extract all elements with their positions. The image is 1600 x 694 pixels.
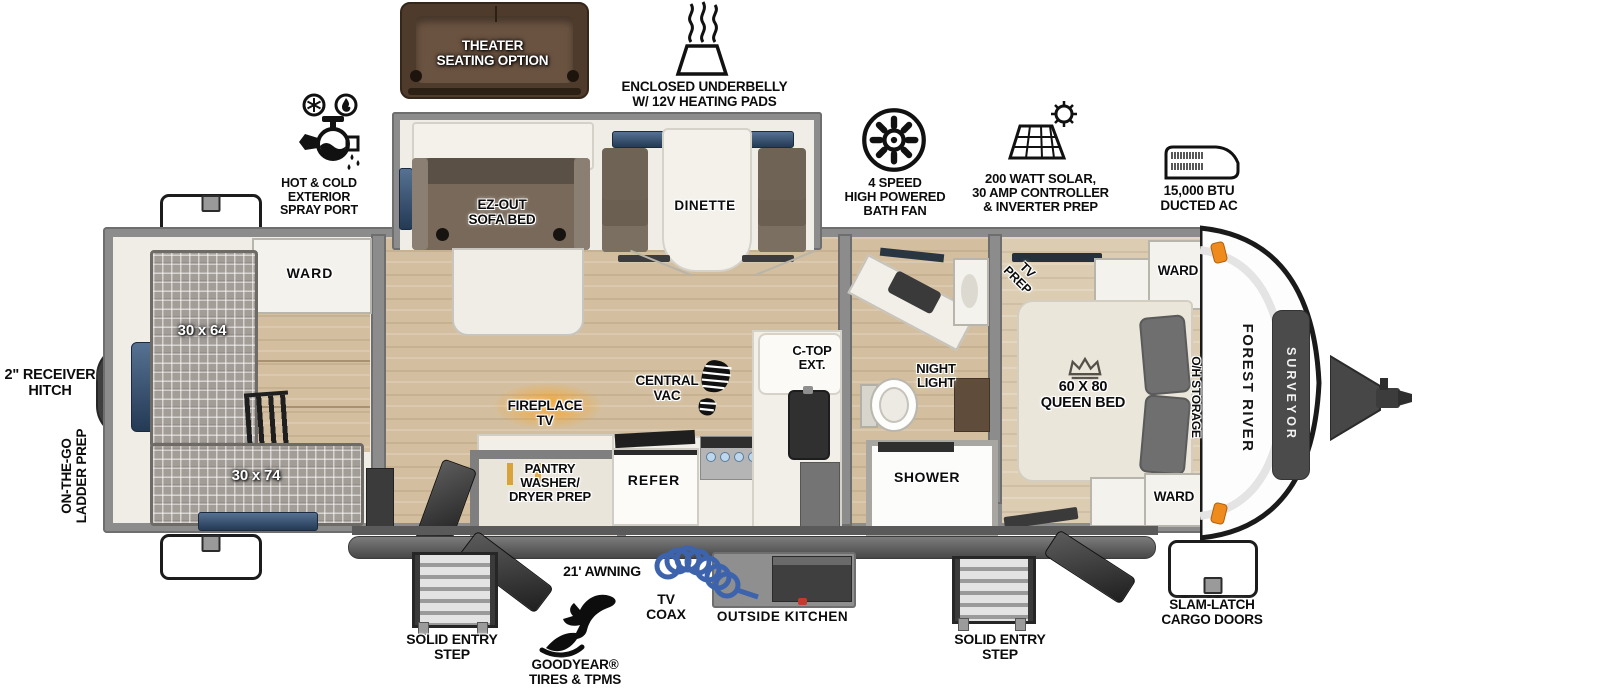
entry-step-right	[952, 556, 1036, 624]
stove-burner	[734, 452, 744, 462]
central-vac-label: CENTRAL VAC	[622, 374, 712, 403]
goodyear-label: GOODYEAR® TIRES & TPMS	[512, 658, 638, 687]
sofa-side-window	[399, 168, 413, 230]
stove-burner	[720, 452, 730, 462]
bath-cabinet-oval	[961, 274, 978, 308]
dinette-bench-right	[758, 148, 806, 252]
cargo-latch-icon	[202, 195, 221, 212]
ducted-ac-label: 15,000 BTU DUCTED AC	[1154, 184, 1244, 213]
dinette-label: DINETTE	[645, 199, 765, 214]
stove-burner	[706, 452, 716, 462]
sofa-label: EZ-OUT SOFA BED	[452, 198, 552, 227]
sofa-cupholder	[436, 228, 449, 241]
ducted-ac-icon	[1162, 138, 1242, 182]
rear-cargo-door-outline-bottom	[160, 534, 262, 580]
bunk-step-edge	[252, 360, 370, 362]
bunk-upper-mattress	[150, 250, 258, 448]
bath-corner-cabinet	[953, 258, 989, 326]
ladder-prep-label: ON-THE-GO LADDER PREP	[60, 417, 102, 535]
pantry-label: PANTRY WASHER/ DRYER PREP	[494, 462, 606, 504]
slam-latch-label: SLAM-LATCH CARGO DOORS	[1146, 598, 1278, 627]
sofa-cupholder	[553, 228, 566, 241]
shower-label: SHOWER	[872, 470, 982, 485]
goodyear-wingfoot-icon	[534, 590, 622, 658]
shower-head-strip	[878, 442, 954, 452]
sink-faucet	[803, 386, 813, 394]
make-logo: FOREST RIVER	[1235, 298, 1255, 478]
underbelly-label: ENCLOSED UNDERBELLY W/ 12V HEATING PADS	[612, 80, 797, 109]
cargo-latch-icon	[1204, 577, 1223, 594]
cargo-latch-icon	[202, 535, 221, 552]
bed-pillow	[1139, 394, 1192, 476]
awning-label: 21' AWNING	[552, 564, 652, 579]
entry-step-left-label: SOLID ENTRY STEP	[397, 632, 507, 662]
theater-seat-seam	[495, 6, 497, 22]
bunk-upper-size-label: 30 x 64	[152, 323, 252, 339]
kitchen-end-cabinet	[800, 462, 840, 530]
solar-prep-label: 200 WATT SOLAR, 30 AMP CONTROLLER & INVE…	[958, 172, 1123, 214]
receiver-hitch-label: 2" RECEIVER HITCH	[0, 368, 100, 399]
theater-seat-cupholder	[567, 70, 579, 82]
bunk-lower-size-label: 30 x 74	[206, 468, 306, 484]
theater-seat-cupholder	[410, 70, 422, 82]
floorplan-canvas: THEATER SEATING OPTION ENCLOSED UNDERBEL…	[0, 0, 1600, 694]
rear-ward-label: WARD	[262, 266, 358, 281]
bath-fan-icon	[860, 106, 928, 174]
bedroom-nightstand-bottom	[1090, 477, 1146, 527]
spray-port-icon	[286, 92, 378, 178]
ward-front-bottom-label: WARD	[1142, 490, 1206, 505]
solar-prep-icon	[1004, 100, 1082, 170]
frame-rail	[352, 526, 1158, 535]
shower-stall	[866, 440, 998, 538]
tv-coax-label: TV COAX	[638, 592, 694, 622]
sofa-armrest	[412, 158, 428, 250]
bunkroom-bottom-window	[198, 512, 318, 531]
front-cargo-door-outline	[1168, 540, 1258, 598]
sofa-bed-pullout	[452, 248, 584, 336]
night-light-label: NIGHT LIGHT	[900, 362, 972, 390]
model-logo: SURVEYOR	[1283, 314, 1297, 474]
theater-seat-base	[408, 88, 581, 95]
sofa-backrest	[426, 158, 576, 184]
bath-fan-label: 4 SPEED HIGH POWERED BATH FAN	[830, 176, 960, 218]
entry-step-left	[412, 552, 498, 628]
hitch-tongue	[1330, 352, 1415, 444]
outside-kitchen-label: OUTSIDE KITCHEN	[705, 610, 860, 625]
sofa-armrest	[574, 158, 590, 250]
dinette-bench-left	[602, 148, 648, 252]
entry-step-right-label: SOLID ENTRY STEP	[945, 632, 1055, 662]
ctop-ext-label: C-TOP EXT.	[783, 344, 841, 372]
crown-icon	[1066, 356, 1104, 381]
step-foot	[958, 618, 969, 631]
fireplace-label: FIREPLACE TV	[495, 399, 595, 428]
spray-port-label: HOT & COLD EXTERIOR SPRAY PORT	[254, 177, 384, 218]
heating-pads-icon	[658, 0, 744, 78]
oh-storage-label: O/H STORAGE	[1186, 349, 1202, 445]
step-foot	[1015, 618, 1026, 631]
refer-label: REFER	[612, 473, 696, 488]
outside-kitchen-griddle	[772, 556, 852, 602]
bunkroom-tv-cabinet	[366, 468, 394, 530]
kitchen-sink	[788, 390, 830, 460]
queen-bed-label: 60 X 80 QUEEN BED	[1024, 380, 1142, 411]
toilet-seat	[879, 387, 909, 423]
theater-seating-label: THEATER SEATING OPTION	[420, 39, 565, 68]
griddle-knob	[798, 598, 807, 605]
bed-pillow	[1139, 314, 1192, 396]
